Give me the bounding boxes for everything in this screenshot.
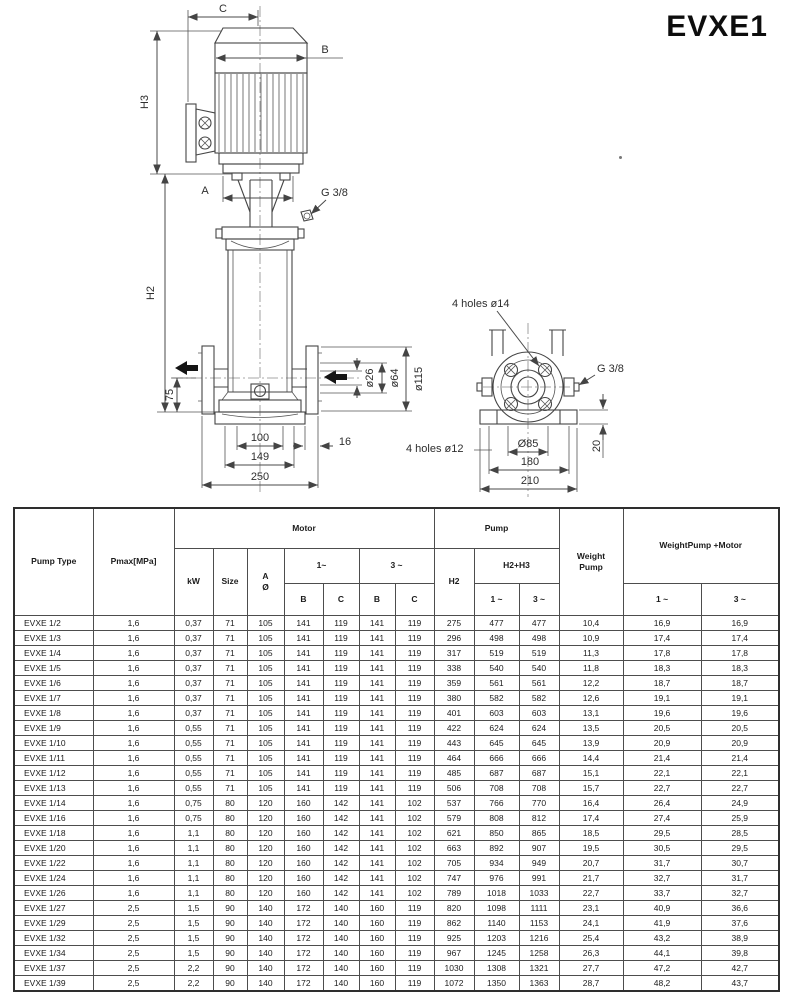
cell-value: 140 xyxy=(247,975,284,991)
cell-value: 22,7 xyxy=(559,885,623,900)
cell-value: 141 xyxy=(359,615,395,630)
cell-value: 80 xyxy=(213,855,247,870)
suction-flange xyxy=(198,346,228,414)
cell-value: 119 xyxy=(323,660,359,675)
cell-value: 663 xyxy=(434,840,474,855)
table-row: EVXE 1/101,60,55711051411191411194436456… xyxy=(14,735,779,750)
cell-value: 48,2 xyxy=(623,975,701,991)
cell-value: 24,9 xyxy=(701,795,779,810)
cell-value: 485 xyxy=(434,765,474,780)
cell-value: 865 xyxy=(519,825,559,840)
cell-value: 862 xyxy=(434,915,474,930)
cell-value: 10,9 xyxy=(559,630,623,645)
cell-value: 140 xyxy=(323,945,359,960)
cell-value: 1030 xyxy=(434,960,474,975)
dim-label-250: 250 xyxy=(251,471,269,483)
cell-value: 90 xyxy=(213,960,247,975)
cell-value: 1308 xyxy=(474,960,519,975)
cell-pump-type: EVXE 1/39 xyxy=(14,975,93,991)
cell-value: 22,1 xyxy=(623,765,701,780)
cell-value: 1,6 xyxy=(93,615,174,630)
cell-value: 296 xyxy=(434,630,474,645)
cell-value: 141 xyxy=(359,765,395,780)
cell-value: 12,6 xyxy=(559,690,623,705)
cell-pump-type: EVXE 1/11 xyxy=(14,750,93,765)
cell-value: 16,4 xyxy=(559,795,623,810)
cell-value: 540 xyxy=(519,660,559,675)
cell-value: 120 xyxy=(247,885,284,900)
cell-value: 140 xyxy=(247,930,284,945)
cell-value: 1,6 xyxy=(93,795,174,810)
cell-value: 119 xyxy=(323,630,359,645)
cell-value: 1,5 xyxy=(174,900,213,915)
cell-value: 11,3 xyxy=(559,645,623,660)
cell-value: 925 xyxy=(434,930,474,945)
cell-value: 18,3 xyxy=(623,660,701,675)
flow-arrow-right xyxy=(324,370,347,384)
cell-value: 140 xyxy=(247,915,284,930)
cell-value: 120 xyxy=(247,870,284,885)
cell-value: 33,7 xyxy=(623,885,701,900)
cell-value: 39,8 xyxy=(701,945,779,960)
cell-value: 71 xyxy=(213,750,247,765)
cell-value: 27,7 xyxy=(559,960,623,975)
cell-value: 1,6 xyxy=(93,870,174,885)
cell-value: 90 xyxy=(213,900,247,915)
cell-value: 12,2 xyxy=(559,675,623,690)
spec-table: Pump Type Pmax[MPa] Motor Pump Weight Pu… xyxy=(13,507,780,992)
col-h2h3-1ph: 1 ~ xyxy=(474,583,519,615)
cell-value: 2,5 xyxy=(93,900,174,915)
cell-pump-type: EVXE 1/7 xyxy=(14,690,93,705)
group-pump: Pump xyxy=(434,508,559,548)
table-row: EVXE 1/241,61,18012016014214110274797699… xyxy=(14,870,779,885)
cell-value: 142 xyxy=(323,855,359,870)
cell-value: 90 xyxy=(213,975,247,991)
motor-fins xyxy=(219,74,303,152)
cell-value: 102 xyxy=(395,825,434,840)
cell-value: 17,8 xyxy=(623,645,701,660)
cell-value: 119 xyxy=(323,645,359,660)
cell-value: 17,4 xyxy=(623,630,701,645)
col-size: Size xyxy=(213,548,247,615)
cell-value: 26,3 xyxy=(559,945,623,960)
cell-value: 105 xyxy=(247,705,284,720)
cell-value: 537 xyxy=(434,795,474,810)
cell-value: 142 xyxy=(323,885,359,900)
cell-value: 119 xyxy=(395,735,434,750)
dim-label-c: C xyxy=(219,3,227,15)
table-header: Pump Type Pmax[MPa] Motor Pump Weight Pu… xyxy=(14,508,779,615)
cell-value: 0,37 xyxy=(174,615,213,630)
cell-value: 119 xyxy=(395,930,434,945)
cell-value: 21,4 xyxy=(701,750,779,765)
flow-arrow-left xyxy=(175,361,198,375)
dim-label-149: 149 xyxy=(251,451,269,463)
cell-value: 967 xyxy=(434,945,474,960)
cell-value: 0,75 xyxy=(174,810,213,825)
cell-value: 141 xyxy=(359,645,395,660)
cell-value: 1,1 xyxy=(174,840,213,855)
cell-value: 71 xyxy=(213,645,247,660)
dim-label-d26: ø26 xyxy=(364,369,376,388)
cell-value: 105 xyxy=(247,615,284,630)
cell-value: 141 xyxy=(359,735,395,750)
cell-pump-type: EVXE 1/3 xyxy=(14,630,93,645)
cell-value: 141 xyxy=(284,705,323,720)
cell-value: 119 xyxy=(395,780,434,795)
cell-value: 15,7 xyxy=(559,780,623,795)
table-row: EVXE 1/221,61,18012016014214110270593494… xyxy=(14,855,779,870)
cell-value: 172 xyxy=(284,930,323,945)
cell-value: 140 xyxy=(247,945,284,960)
cell-value: 0,37 xyxy=(174,690,213,705)
base-dimensions: 4 holes ø14 G 3/8 20 4 holes ø12 Ø85 180 xyxy=(406,298,624,492)
cell-value: 11,8 xyxy=(559,660,623,675)
cell-value: 141 xyxy=(284,765,323,780)
cell-value: 14,4 xyxy=(559,750,623,765)
cell-pump-type: EVXE 1/26 xyxy=(14,885,93,900)
table-row: EVXE 1/81,60,377110514111914111940160360… xyxy=(14,705,779,720)
cell-value: 102 xyxy=(395,840,434,855)
cell-value: 464 xyxy=(434,750,474,765)
cell-value: 141 xyxy=(284,630,323,645)
cell-value: 141 xyxy=(359,885,395,900)
cell-value: 0,55 xyxy=(174,720,213,735)
cell-value: 119 xyxy=(395,645,434,660)
cell-value: 25,9 xyxy=(701,810,779,825)
cell-pump-type: EVXE 1/2 xyxy=(14,615,93,630)
cell-value: 119 xyxy=(395,960,434,975)
dim-label-d64: ø64 xyxy=(389,369,401,388)
cell-value: 766 xyxy=(474,795,519,810)
table-row: EVXE 1/261,61,18012016014214110278910181… xyxy=(14,885,779,900)
cell-value: 141 xyxy=(359,675,395,690)
cell-value: 991 xyxy=(519,870,559,885)
weight-line2: Pump xyxy=(560,562,623,573)
cell-value: 18,7 xyxy=(701,675,779,690)
cell-value: 0,55 xyxy=(174,735,213,750)
cell-value: 2,5 xyxy=(93,915,174,930)
cell-pump-type: EVXE 1/8 xyxy=(14,705,93,720)
cell-value: 172 xyxy=(284,960,323,975)
discharge-flange xyxy=(292,346,322,414)
cell-value: 119 xyxy=(323,690,359,705)
col-b-1ph: B xyxy=(284,583,323,615)
cell-value: 141 xyxy=(359,705,395,720)
cell-value: 1111 xyxy=(519,900,559,915)
cell-value: 477 xyxy=(519,615,559,630)
dim-label-a: A xyxy=(201,185,209,197)
cell-value: 140 xyxy=(323,915,359,930)
cell-value: 119 xyxy=(395,675,434,690)
cell-value: 850 xyxy=(474,825,519,840)
cell-value: 120 xyxy=(247,810,284,825)
cell-value: 172 xyxy=(284,900,323,915)
cell-value: 119 xyxy=(395,915,434,930)
label-4holes14: 4 holes ø14 xyxy=(452,298,509,310)
cell-value: 934 xyxy=(474,855,519,870)
cell-value: 2,2 xyxy=(174,975,213,991)
cell-value: 90 xyxy=(213,915,247,930)
cell-value: 71 xyxy=(213,630,247,645)
cell-pump-type: EVXE 1/24 xyxy=(14,870,93,885)
cell-value: 28,5 xyxy=(701,825,779,840)
cell-value: 1,6 xyxy=(93,780,174,795)
cell-value: 498 xyxy=(519,630,559,645)
group-motor-1ph: 1~ xyxy=(284,548,359,583)
cell-value: 105 xyxy=(247,780,284,795)
cell-value: 30,7 xyxy=(701,855,779,870)
cell-value: 582 xyxy=(474,690,519,705)
cell-value: 119 xyxy=(323,780,359,795)
cell-value: 71 xyxy=(213,705,247,720)
cell-value: 22,1 xyxy=(701,765,779,780)
cell-pump-type: EVXE 1/10 xyxy=(14,735,93,750)
cell-value: 561 xyxy=(519,675,559,690)
cell-pump-type: EVXE 1/6 xyxy=(14,675,93,690)
coupling-lantern xyxy=(232,173,313,227)
cell-value: 102 xyxy=(395,855,434,870)
col-pmax: Pmax[MPa] xyxy=(93,508,174,615)
cell-value: 603 xyxy=(519,705,559,720)
cell-value: 47,2 xyxy=(623,960,701,975)
cell-value: 141 xyxy=(284,750,323,765)
cell-value: 120 xyxy=(247,825,284,840)
cell-value: 1,6 xyxy=(93,660,174,675)
cell-value: 0,37 xyxy=(174,705,213,720)
cell-value: 141 xyxy=(359,630,395,645)
cell-pump-type: EVXE 1/20 xyxy=(14,840,93,855)
cell-pump-type: EVXE 1/5 xyxy=(14,660,93,675)
cell-value: 141 xyxy=(359,870,395,885)
cell-value: 119 xyxy=(395,765,434,780)
col-c-3ph: C xyxy=(395,583,434,615)
cell-value: 71 xyxy=(213,735,247,750)
dim-label-g38-front: G 3/8 xyxy=(321,187,348,199)
cell-value: 506 xyxy=(434,780,474,795)
cell-value: 119 xyxy=(323,675,359,690)
group-motor-3ph: 3 ~ xyxy=(359,548,434,583)
cell-value: 2,2 xyxy=(174,960,213,975)
cell-value: 1,6 xyxy=(93,735,174,750)
cell-value: 1072 xyxy=(434,975,474,991)
cell-value: 18,5 xyxy=(559,825,623,840)
cell-value: 29,5 xyxy=(701,840,779,855)
dim-label-d115: ø115 xyxy=(413,367,425,391)
cell-value: 29,5 xyxy=(623,825,701,840)
cell-value: 0,55 xyxy=(174,750,213,765)
table-body: EVXE 1/21,60,377110514111914111927547747… xyxy=(14,615,779,991)
cell-value: 160 xyxy=(284,870,323,885)
cell-value: 142 xyxy=(323,825,359,840)
cell-value: 44,1 xyxy=(623,945,701,960)
cell-value: 1,5 xyxy=(174,945,213,960)
front-dimensions: C B H3 H2 75 A G 3/8 xyxy=(139,3,425,488)
table-row: EVXE 1/91,60,557110514111914111942262462… xyxy=(14,720,779,735)
table-row: EVXE 1/181,61,18012016014214110262185086… xyxy=(14,825,779,840)
cell-value: 579 xyxy=(434,810,474,825)
cell-value: 582 xyxy=(519,690,559,705)
cell-value: 1,6 xyxy=(93,855,174,870)
cell-value: 71 xyxy=(213,615,247,630)
cell-value: 43,2 xyxy=(623,930,701,945)
table-row: EVXE 1/61,60,377110514111914111935956156… xyxy=(14,675,779,690)
cell-value: 160 xyxy=(359,900,395,915)
cell-value: 141 xyxy=(359,660,395,675)
cell-value: 32,7 xyxy=(701,885,779,900)
cell-value: 338 xyxy=(434,660,474,675)
cell-value: 976 xyxy=(474,870,519,885)
col-kw: kW xyxy=(174,548,213,615)
cell-value: 119 xyxy=(395,660,434,675)
cell-value: 645 xyxy=(474,735,519,750)
cell-value: 119 xyxy=(323,720,359,735)
table-row: EVXE 1/161,60,75801201601421411025798088… xyxy=(14,810,779,825)
cell-pump-type: EVXE 1/29 xyxy=(14,915,93,930)
cell-pump-type: EVXE 1/14 xyxy=(14,795,93,810)
cell-value: 105 xyxy=(247,690,284,705)
table-row: EVXE 1/111,60,55711051411191411194646666… xyxy=(14,750,779,765)
cell-value: 18,7 xyxy=(623,675,701,690)
table-row: EVXE 1/31,60,377110514111914111929649849… xyxy=(14,630,779,645)
cell-value: 1363 xyxy=(519,975,559,991)
cell-value: 160 xyxy=(284,855,323,870)
cell-value: 105 xyxy=(247,660,284,675)
cell-value: 23,1 xyxy=(559,900,623,915)
cell-value: 160 xyxy=(284,840,323,855)
col-h2: H2 xyxy=(434,548,474,615)
cell-value: 160 xyxy=(284,825,323,840)
cell-value: 13,1 xyxy=(559,705,623,720)
cell-value: 141 xyxy=(359,750,395,765)
cell-value: 40,9 xyxy=(623,900,701,915)
cell-value: 705 xyxy=(434,855,474,870)
cell-value: 172 xyxy=(284,915,323,930)
table-row: EVXE 1/71,60,377110514111914111938058258… xyxy=(14,690,779,705)
cell-value: 1,5 xyxy=(174,915,213,930)
cell-value: 141 xyxy=(359,795,395,810)
table-row: EVXE 1/201,61,18012016014214110266389290… xyxy=(14,840,779,855)
cell-value: 141 xyxy=(284,780,323,795)
cell-value: 359 xyxy=(434,675,474,690)
dim-label-16: 16 xyxy=(339,436,351,448)
cell-value: 20,9 xyxy=(701,735,779,750)
cell-value: 0,37 xyxy=(174,645,213,660)
table-row: EVXE 1/51,60,377110514111914111933854054… xyxy=(14,660,779,675)
cell-value: 17,8 xyxy=(701,645,779,660)
cell-value: 422 xyxy=(434,720,474,735)
cell-pump-type: EVXE 1/12 xyxy=(14,765,93,780)
cell-value: 621 xyxy=(434,825,474,840)
cell-value: 160 xyxy=(284,885,323,900)
cell-value: 42,7 xyxy=(701,960,779,975)
table-row: EVXE 1/131,60,55711051411191411195067087… xyxy=(14,780,779,795)
cell-value: 141 xyxy=(284,660,323,675)
group-motor: Motor xyxy=(174,508,434,548)
cell-value: 141 xyxy=(359,690,395,705)
group-h2h3: H2+H3 xyxy=(474,548,559,583)
cell-value: 20,5 xyxy=(623,720,701,735)
cell-value: 119 xyxy=(395,750,434,765)
cell-value: 80 xyxy=(213,795,247,810)
table-row: EVXE 1/292,51,59014017214016011986211401… xyxy=(14,915,779,930)
cell-value: 561 xyxy=(474,675,519,690)
cell-value: 0,75 xyxy=(174,795,213,810)
cell-value: 119 xyxy=(395,975,434,991)
cell-value: 519 xyxy=(519,645,559,660)
cell-value: 624 xyxy=(519,720,559,735)
cell-value: 21,4 xyxy=(623,750,701,765)
cell-value: 141 xyxy=(359,780,395,795)
cell-value: 19,5 xyxy=(559,840,623,855)
cell-value: 1216 xyxy=(519,930,559,945)
cell-value: 1203 xyxy=(474,930,519,945)
cell-pump-type: EVXE 1/37 xyxy=(14,960,93,975)
table-row: EVXE 1/21,60,377110514111914111927547747… xyxy=(14,615,779,630)
cell-value: 102 xyxy=(395,870,434,885)
cell-value: 38,9 xyxy=(701,930,779,945)
cell-value: 808 xyxy=(474,810,519,825)
technical-drawing: C B H3 H2 75 A G 3/8 xyxy=(0,0,789,505)
cell-value: 43,7 xyxy=(701,975,779,991)
cell-value: 317 xyxy=(434,645,474,660)
group-weight-pump-motor: WeightPump +Motor xyxy=(623,508,779,583)
cell-value: 1018 xyxy=(474,885,519,900)
cell-value: 624 xyxy=(474,720,519,735)
cell-value: 119 xyxy=(323,615,359,630)
cell-value: 71 xyxy=(213,765,247,780)
motor xyxy=(215,28,307,173)
cell-value: 2,5 xyxy=(93,945,174,960)
cell-value: 142 xyxy=(323,840,359,855)
pump-front-view: C B H3 H2 75 A G 3/8 xyxy=(139,3,425,492)
cell-pump-type: EVXE 1/16 xyxy=(14,810,93,825)
cell-value: 1033 xyxy=(519,885,559,900)
cell-value: 105 xyxy=(247,735,284,750)
cell-value: 142 xyxy=(323,870,359,885)
cell-value: 1,6 xyxy=(93,630,174,645)
cell-value: 380 xyxy=(434,690,474,705)
cell-pump-type: EVXE 1/27 xyxy=(14,900,93,915)
cell-value: 119 xyxy=(323,750,359,765)
cell-value: 105 xyxy=(247,750,284,765)
table-row: EVXE 1/372,52,29014017214016011910301308… xyxy=(14,960,779,975)
col-h2h3-3ph: 3 ~ xyxy=(519,583,559,615)
cell-value: 25,4 xyxy=(559,930,623,945)
cell-value: 0,37 xyxy=(174,660,213,675)
cell-value: 119 xyxy=(323,765,359,780)
cell-value: 140 xyxy=(323,975,359,991)
cell-value: 708 xyxy=(474,780,519,795)
cell-value: 119 xyxy=(395,900,434,915)
cell-value: 140 xyxy=(247,900,284,915)
cell-value: 120 xyxy=(247,840,284,855)
cell-value: 37,6 xyxy=(701,915,779,930)
cell-value: 105 xyxy=(247,765,284,780)
cell-pump-type: EVXE 1/22 xyxy=(14,855,93,870)
cell-value: 708 xyxy=(519,780,559,795)
cell-value: 666 xyxy=(519,750,559,765)
cell-value: 1,6 xyxy=(93,720,174,735)
cell-value: 20,9 xyxy=(623,735,701,750)
cell-value: 20,5 xyxy=(701,720,779,735)
cell-value: 1,6 xyxy=(93,810,174,825)
cell-value: 27,4 xyxy=(623,810,701,825)
cell-value: 160 xyxy=(359,930,395,945)
cell-value: 519 xyxy=(474,645,519,660)
dim-label-b: B xyxy=(321,44,328,56)
